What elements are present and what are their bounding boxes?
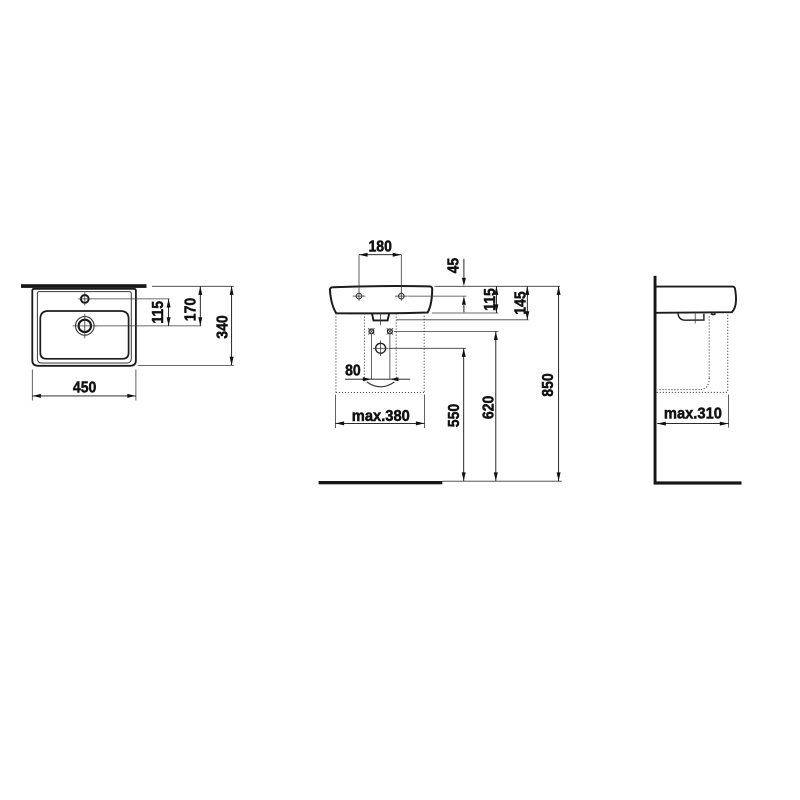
svg-text:170: 170	[182, 298, 200, 321]
svg-text:max.380: max.380	[352, 407, 410, 425]
svg-text:620: 620	[479, 396, 497, 419]
svg-text:850: 850	[539, 373, 557, 396]
svg-text:180: 180	[368, 238, 391, 256]
svg-text:450: 450	[73, 379, 96, 397]
svg-text:115: 115	[481, 288, 499, 311]
svg-text:115: 115	[149, 301, 167, 324]
svg-text:80: 80	[345, 362, 361, 380]
svg-text:45: 45	[445, 258, 463, 274]
svg-text:max.310: max.310	[664, 405, 722, 423]
svg-text:550: 550	[445, 404, 463, 427]
svg-text:145: 145	[512, 291, 530, 314]
svg-text:340: 340	[213, 315, 231, 338]
